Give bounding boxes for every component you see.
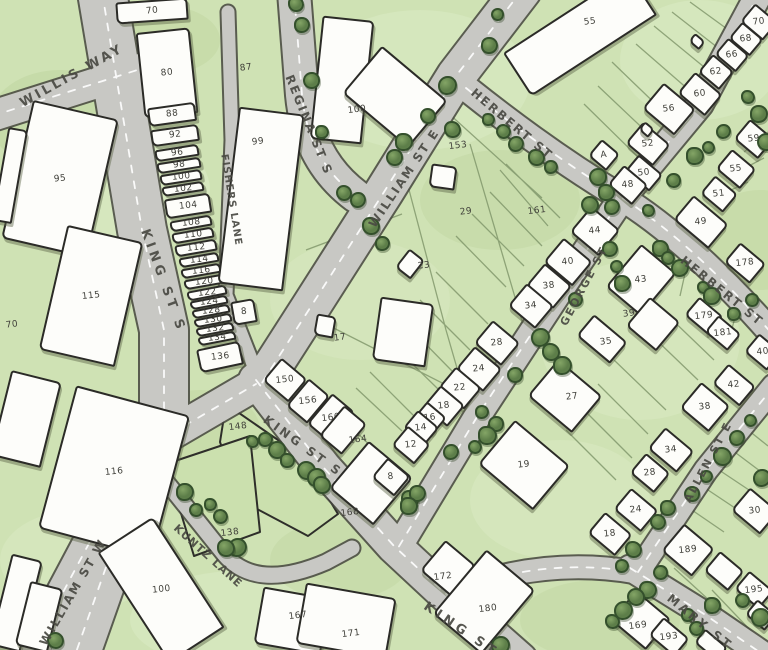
building-number-label: 70 — [145, 6, 158, 16]
building — [428, 163, 457, 190]
building-number-label: 18 — [603, 529, 616, 539]
tree-icon — [189, 503, 203, 517]
tree-icon — [650, 514, 666, 530]
building-number-label: 12 — [404, 440, 417, 450]
tree-icon — [395, 133, 413, 151]
building-number-label: 70 — [752, 17, 765, 27]
tree-icon — [581, 196, 599, 214]
building-number-label: 28 — [490, 338, 503, 348]
tree-icon — [213, 509, 228, 524]
building-number-label: 40 — [561, 257, 574, 267]
tree-icon — [666, 173, 681, 188]
tree-icon — [735, 593, 750, 608]
building-number-label: 114 — [189, 255, 209, 266]
building-number-label: 38 — [542, 281, 555, 291]
building-number-label: 150 — [275, 375, 295, 386]
building-number-label: 8 — [387, 472, 394, 482]
building-number-label: 95 — [53, 174, 66, 184]
tree-icon — [553, 356, 572, 375]
building-number-label: 178 — [735, 258, 755, 269]
tree-icon — [386, 149, 403, 166]
tree-icon — [750, 105, 768, 123]
tree-icon — [176, 483, 194, 501]
building-number-label: 24 — [629, 505, 642, 515]
building-8: 8 — [230, 298, 258, 326]
building-number-label: 19 — [517, 460, 530, 470]
building-number-label: 98 — [172, 160, 185, 170]
tree-icon — [420, 108, 436, 124]
building — [372, 297, 434, 368]
building-number-label: 181 — [713, 328, 733, 339]
tree-icon — [598, 184, 615, 201]
building-number-label: 52 — [641, 139, 654, 149]
tree-icon — [702, 141, 715, 154]
tree-icon — [610, 260, 623, 273]
tree-icon — [217, 539, 235, 557]
building-number-label: 49 — [694, 217, 707, 227]
building-number-label: 92 — [168, 130, 181, 140]
tree-icon — [744, 414, 757, 427]
building-number-label: 108 — [181, 218, 201, 229]
building-number-label: 55 — [729, 164, 742, 174]
building-number-label: 27 — [565, 391, 579, 402]
building-number-label: 100 — [171, 172, 191, 183]
building-number-label: 30 — [748, 506, 761, 516]
building-number-label: 60 — [693, 89, 706, 99]
tree-icon — [751, 608, 768, 627]
building-number-label: 68 — [739, 34, 752, 44]
building-number-label: 96 — [170, 148, 183, 158]
building-number-label: 42 — [727, 380, 740, 390]
tree-icon — [468, 440, 482, 454]
building-number-label: 156 — [298, 396, 318, 407]
tree-icon — [375, 236, 390, 251]
building-number-label: 62 — [709, 67, 722, 77]
tree-icon — [660, 500, 676, 516]
building-number-label: 116 — [104, 467, 124, 478]
building-number-label: A — [600, 150, 608, 160]
building-number-label: 43 — [634, 275, 647, 285]
tree-icon — [614, 275, 631, 292]
tree-icon — [716, 124, 731, 139]
building-number-label: 112 — [186, 243, 206, 254]
building-number-label: 110 — [183, 230, 203, 241]
building-number-label: 179 — [694, 311, 714, 322]
building-number-label: 23 — [417, 260, 431, 271]
tree-icon — [757, 133, 768, 151]
tree-icon — [400, 497, 418, 515]
building-number-label: 38 — [698, 402, 711, 412]
building-number-label: 80 — [160, 68, 173, 78]
tree-icon — [704, 597, 721, 614]
tree-icon — [481, 37, 498, 54]
building-number-label: 104 — [178, 201, 198, 212]
tree-icon — [204, 498, 217, 511]
building-number-label: 100 — [151, 585, 171, 596]
building-number-label: 24 — [472, 364, 485, 374]
building-number-label: 34 — [524, 301, 537, 311]
building-number-label: 48 — [621, 180, 634, 190]
tree-icon — [444, 121, 461, 138]
parcel-number-label: 70 — [5, 319, 19, 330]
tree-icon — [475, 405, 489, 419]
building-number-label: 116 — [191, 266, 211, 277]
building-number-label: 102 — [173, 184, 193, 195]
tree-icon — [642, 204, 655, 217]
building-number-label: 88 — [165, 109, 178, 119]
tree-icon — [507, 367, 523, 383]
tree-icon — [653, 565, 668, 580]
building-number-label: 44 — [588, 226, 601, 236]
building-number-label: 136 — [210, 352, 230, 363]
map-canvas[interactable]: 7080889296981001021041081101121141161201… — [0, 0, 768, 650]
tree-icon — [246, 435, 259, 448]
building-number-label: 120 — [194, 277, 214, 288]
building-number-label: 22 — [453, 383, 466, 393]
building-number-label: 99 — [251, 136, 265, 147]
tree-icon — [280, 453, 295, 468]
building-number-label: 51 — [712, 189, 725, 199]
building-number-label: 35 — [599, 336, 613, 347]
tree-icon — [303, 72, 320, 89]
building-number-label: 34 — [664, 445, 677, 455]
parcel-number-label: 87 — [239, 62, 253, 73]
building-number-label: 193 — [659, 632, 679, 643]
parcel-number-label: 29 — [459, 206, 473, 217]
tree-icon — [478, 426, 497, 445]
tree-icon — [438, 76, 457, 95]
building-number-label: 189 — [678, 545, 698, 556]
tree-icon — [615, 559, 629, 573]
building-number-label: 28 — [643, 468, 656, 478]
building-number-label: 17 — [333, 332, 347, 343]
tree-icon — [605, 614, 620, 629]
building-number-label: 55 — [583, 16, 597, 27]
tree-icon — [294, 17, 310, 33]
tree-icon — [753, 469, 768, 487]
tree-icon — [625, 541, 642, 558]
building-number-label: 66 — [725, 50, 738, 60]
building-number-label: 18 — [437, 401, 450, 411]
building-number-label: 115 — [81, 291, 101, 302]
tree-icon — [313, 476, 331, 494]
building-number-label: 39 — [622, 308, 636, 319]
tree-icon — [686, 147, 704, 165]
tree-icon — [741, 90, 755, 104]
tree-icon — [491, 8, 504, 21]
building-number-label: 8 — [240, 307, 247, 317]
building-number-label: 40 — [756, 347, 768, 357]
building-number-label: 56 — [662, 104, 675, 114]
